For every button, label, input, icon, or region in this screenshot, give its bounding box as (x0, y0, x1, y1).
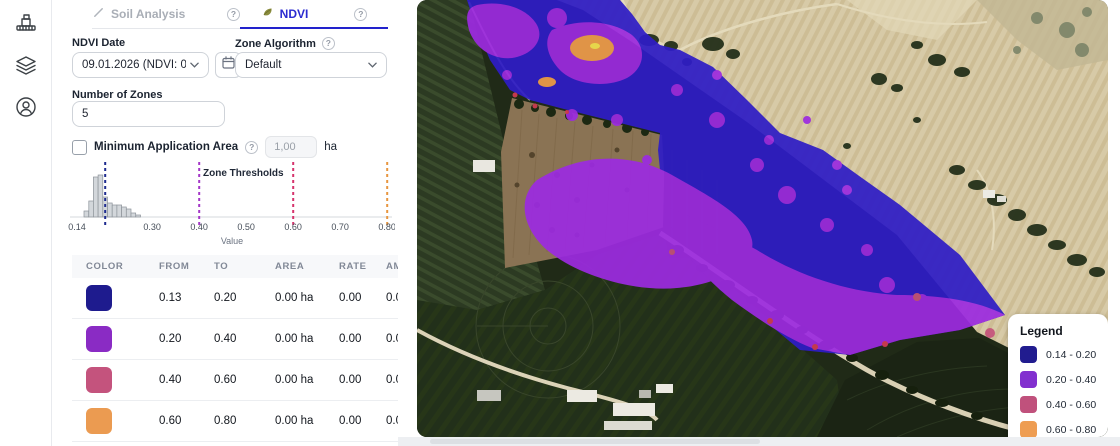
zone-color-swatch[interactable] (86, 285, 112, 311)
ndvi-date-select[interactable]: 09.01.2026 (NDVI: 0.194 (72, 52, 209, 78)
minimum-application-area-row: Minimum Application Area ? ha (72, 136, 337, 158)
minimum-application-area-label: Minimum Application Area (94, 141, 238, 153)
tab-soil-analysis-label: Soil Analysis (111, 7, 185, 21)
svg-text:0.80: 0.80 (378, 222, 395, 232)
horizontal-scrollbar-thumb[interactable] (430, 439, 760, 444)
svg-text:0.30: 0.30 (143, 222, 161, 232)
svg-text:0.60: 0.60 (284, 222, 302, 232)
zone-algorithm-select[interactable]: Default (235, 52, 387, 78)
svg-text:0.70: 0.70 (331, 222, 349, 232)
legend-item: 0.60 - 0.80 (1020, 421, 1096, 437)
legend-swatch (1020, 371, 1037, 388)
minimum-application-area-checkbox[interactable] (72, 140, 87, 155)
zones-table: COLOR FROM TO AREA RATE AMOUNT 0.13 0.20… (72, 255, 398, 442)
ndvi-settings-panel: Soil Analysis ? NDVI ? NDVI Date Zone Al… (53, 0, 398, 446)
legend-item: 0.14 - 0.20 (1020, 346, 1096, 363)
legend-swatch (1020, 421, 1037, 437)
histogram-x-axis-label: Value (221, 236, 243, 246)
minimum-application-area-input[interactable] (265, 136, 317, 158)
number-of-zones-input[interactable] (72, 101, 225, 127)
zone-color-swatch[interactable] (86, 408, 112, 434)
number-of-zones-label: Number of Zones (72, 89, 162, 101)
legend-title: Legend (1020, 324, 1096, 338)
legend-item: 0.20 - 0.40 (1020, 371, 1096, 388)
histogram-axis-ticks: 0.140.300.400.500.600.700.80 (68, 222, 395, 232)
histogram-title: Zone Thresholds (203, 168, 284, 179)
table-row[interactable]: 0.40 0.60 0.00 ha 0.00 0.00 (72, 360, 398, 401)
ndvi-date-value: 09.01.2026 (NDVI: 0.194 (82, 59, 186, 71)
legend-swatch (1020, 346, 1037, 363)
harvester-icon[interactable] (11, 8, 41, 38)
zones-table-header: COLOR FROM TO AREA RATE AMOUNT (72, 255, 398, 278)
tab-ndvi[interactable]: NDVI ? (240, 0, 388, 28)
svg-text:0.14: 0.14 (68, 222, 86, 232)
svg-text:0.50: 0.50 (237, 222, 255, 232)
ndvi-histogram: Zone Thresholds 0.140.300.400.500.600.70… (60, 160, 395, 257)
tab-ndvi-label: NDVI (280, 7, 309, 21)
satellite-map[interactable]: Legend 0.14 - 0.20 0.20 - 0.40 0.40 - 0.… (417, 0, 1108, 437)
layers-icon[interactable] (11, 50, 41, 80)
legend-item: 0.40 - 0.60 (1020, 396, 1096, 413)
svg-text:0.40: 0.40 (190, 222, 208, 232)
tab-bar: Soil Analysis ? NDVI ? (92, 0, 388, 29)
hectare-unit-label: ha (324, 141, 337, 153)
chevron-down-icon (190, 59, 199, 71)
ndvi-date-label: NDVI Date (72, 37, 125, 49)
histogram-bars (84, 175, 141, 217)
zone-algorithm-label: Zone Algorithm ? (235, 37, 335, 50)
minimum-application-area-help-icon[interactable]: ? (245, 141, 258, 154)
zone-color-swatch[interactable] (86, 326, 112, 352)
zone-algorithm-value: Default (245, 59, 364, 71)
leaf-icon (261, 6, 274, 22)
ndvi-help-icon[interactable]: ? (354, 8, 367, 21)
app-window: Soil Analysis ? NDVI ? NDVI Date Zone Al… (0, 0, 1120, 446)
legend-swatch (1020, 396, 1037, 413)
chevron-down-icon (368, 59, 377, 71)
table-row[interactable]: 0.20 0.40 0.00 ha 0.00 0.00 (72, 319, 398, 360)
map-canvas[interactable] (417, 0, 1108, 437)
soil-analysis-help-icon[interactable]: ? (227, 8, 240, 21)
left-icon-rail (0, 0, 52, 446)
table-row[interactable]: 0.13 0.20 0.00 ha 0.00 0.00 (72, 278, 398, 319)
calendar-icon (222, 56, 235, 74)
zone-color-swatch[interactable] (86, 367, 112, 393)
map-legend: Legend 0.14 - 0.20 0.20 - 0.40 0.40 - 0.… (1008, 314, 1108, 437)
tab-soil-analysis[interactable]: Soil Analysis ? (92, 0, 240, 28)
zone-algorithm-help-icon[interactable]: ? (322, 37, 335, 50)
table-row[interactable]: 0.60 0.80 0.00 ha 0.00 0.00 (72, 401, 398, 442)
account-icon[interactable] (11, 92, 41, 122)
soil-analysis-icon (92, 6, 105, 22)
